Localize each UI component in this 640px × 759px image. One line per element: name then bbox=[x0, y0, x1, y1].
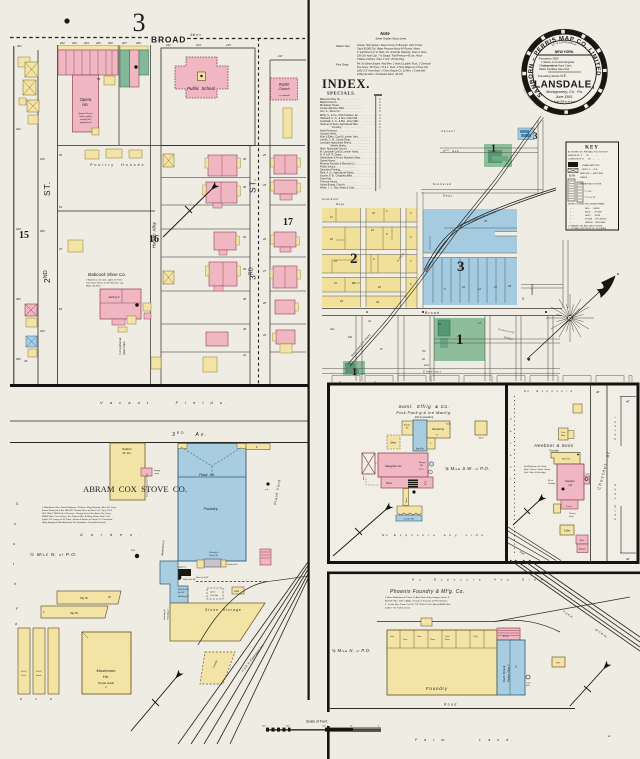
svg-text:3: 3 bbox=[457, 259, 465, 275]
svg-text:202: 202 bbox=[59, 41, 65, 45]
svg-text:Dwellings: Dwellings bbox=[530, 283, 534, 295]
svg-text:61: 61 bbox=[59, 205, 63, 209]
svg-text:GREEN . . SPECIALS: GREEN . . SPECIALS bbox=[585, 221, 606, 224]
svg-text:28: 28 bbox=[262, 301, 267, 305]
svg-text:15: 15 bbox=[19, 230, 29, 241]
svg-text:65: 65 bbox=[59, 307, 63, 311]
svg-text:Baptist: Baptist bbox=[279, 83, 290, 87]
svg-text:1: 1 bbox=[491, 144, 496, 155]
svg-text:Vac.: Vac. bbox=[330, 327, 335, 331]
svg-text:Race: Race bbox=[406, 497, 408, 503]
svg-text:Vacant: Vacant bbox=[441, 129, 456, 133]
svg-text:Cast'g: Cast'g bbox=[566, 505, 572, 508]
svg-text:“ 1TY & 2 1/2”: “ 1TY & 2 1/2” bbox=[584, 197, 596, 199]
svg-text:27: 27 bbox=[262, 269, 267, 273]
svg-text:2 Independent Hose Carts: 2 Independent Hose Carts bbox=[539, 64, 572, 68]
svg-text:No E x p o s u r e a n y: No E x p o s u r e a n y s i d e . bbox=[382, 533, 490, 537]
svg-text:St: St bbox=[521, 297, 525, 300]
svg-text:INDEX.: INDEX. bbox=[322, 77, 370, 91]
svg-text:303: 303 bbox=[16, 297, 21, 301]
svg-text:½ MILE N. of P.O.: ½ MILE N. of P.O. bbox=[30, 551, 78, 557]
svg-text:Cox, A., Stove Co.............: Cox, A., Stove Co.......................… bbox=[320, 110, 362, 113]
svg-text:Hay Ho.: Hay Ho. bbox=[80, 597, 89, 600]
svg-text:53': 53' bbox=[97, 77, 101, 81]
svg-text:Heat'r: Stoves. Power: Steam.: Heat'r: Stoves. Power: Steam. bbox=[524, 468, 551, 471]
svg-text:40': 40' bbox=[626, 557, 630, 561]
svg-text:• . .: • . . bbox=[570, 215, 575, 217]
svg-text:36: 36 bbox=[243, 327, 247, 331]
svg-text:Private Grade: Private Grade bbox=[98, 681, 115, 685]
svg-text:26: 26 bbox=[242, 157, 247, 161]
svg-text:Fuel: Coke. No Fire App.: Fuel: Coke. No Fire App. bbox=[524, 471, 546, 474]
svg-text:Water Fac:: Water Fac: bbox=[336, 44, 351, 48]
svg-text:W. Ho.: W. Ho. bbox=[122, 451, 131, 455]
svg-text:¾ MILE S.W. of P.O.: ¾ MILE S.W. of P.O. bbox=[445, 466, 490, 471]
svg-text:1 B: 1 B bbox=[568, 484, 572, 487]
svg-text:2nd: 2nd bbox=[423, 363, 429, 367]
svg-text:LANSDALE,: LANSDALE, bbox=[534, 80, 595, 91]
svg-text:Ware: Ware bbox=[580, 540, 584, 542]
svg-text:26: 26 bbox=[377, 285, 381, 289]
svg-text:1 Steam & At Hand Engines: 1 Steam & At Hand Engines bbox=[541, 60, 575, 64]
svg-text:SPECIALS.: SPECIALS. bbox=[327, 91, 356, 96]
svg-text:Ice Ho.: Ice Ho. bbox=[416, 447, 424, 451]
svg-text:& Big Fire Alarm. No Electric: & Big Fire Alarm. No Electric Alarm. All… bbox=[357, 73, 404, 76]
svg-text:Lights: Oil. Lamps to 20' Foun: Lights: Oil. Lamps to 20' Foun'. Steam &… bbox=[42, 518, 113, 521]
svg-text:204: 204 bbox=[39, 329, 45, 333]
svg-text:2 Hours Watchman & Clock. To A: 2 Hours Watchman & Clock. To And: Stove … bbox=[384, 596, 450, 599]
svg-text:Lane: Lane bbox=[390, 636, 394, 638]
svg-text:Shop: Shop bbox=[569, 516, 573, 518]
svg-text:206: 206 bbox=[107, 41, 113, 45]
svg-text:AT STORES STO FRE WALL TIN &: AT STORES STO FRE WALL TIN & GR ROOF bbox=[568, 151, 609, 154]
svg-text:Mushroom: Mushroom bbox=[97, 668, 117, 673]
svg-text:RED . . . BRICK: RED . . . BRICK bbox=[585, 208, 600, 210]
svg-text:32: 32 bbox=[243, 235, 247, 239]
svg-text:room: room bbox=[154, 473, 159, 475]
svg-text:Heebner & Sons: Heebner & Sons bbox=[534, 443, 574, 448]
svg-text:n' to steeple: n' to steeple bbox=[278, 94, 290, 97]
svg-text:Foundry: Foundry bbox=[426, 686, 448, 691]
svg-text:N o E x p o s u r e A n: N o E x p o s u r e A n y S i d e bbox=[412, 578, 544, 582]
svg-text:C: C bbox=[35, 698, 37, 701]
svg-text:Shed: Shed bbox=[390, 442, 396, 445]
svg-text:Pattern Shop 2: Pattern Shop 2 bbox=[507, 664, 511, 682]
svg-text:GREY . . . IRON: GREY . . . IRON bbox=[585, 215, 601, 217]
svg-text:Hay Ho.: Hay Ho. bbox=[70, 612, 79, 615]
svg-text:“ 1” & 2F “: “ 1” & 2F “ bbox=[584, 191, 593, 193]
svg-text:Tanks: Tanks bbox=[446, 424, 451, 426]
svg-text:June 1891.: June 1891. bbox=[555, 95, 574, 99]
svg-text:Factory 2: Factory 2 bbox=[109, 295, 120, 299]
svg-text:Ho: Ho bbox=[424, 484, 426, 486]
svg-text:SUPER COLORED YELLOW ARE FRAME: SUPER COLORED YELLOW ARE FRAME bbox=[568, 203, 605, 206]
svg-text:1: 1 bbox=[456, 332, 464, 348]
svg-text:27: 27 bbox=[493, 285, 497, 289]
svg-text:1 Watchman. No clock. Lights O: 1 Watchman. No clock. Lights Oil. Fuel: bbox=[86, 279, 123, 282]
svg-text:• . .: • . . bbox=[570, 212, 575, 214]
svg-text:b.m.: b.m. bbox=[131, 549, 136, 552]
svg-text:Bl.sm: Bl.sm bbox=[548, 480, 553, 482]
svg-text:3: 3 bbox=[133, 8, 146, 37]
svg-text:29: 29 bbox=[262, 333, 267, 337]
svg-text:Scattered: Scattered bbox=[322, 197, 339, 201]
svg-text:100: 100 bbox=[40, 157, 45, 161]
svg-text:Dwgs: Dwgs bbox=[443, 194, 453, 198]
svg-text:White, J. J., Hay, Straw & Coa: White, J. J., Hay, Straw & Coal,........… bbox=[320, 187, 376, 190]
svg-text:ST.: ST. bbox=[42, 181, 52, 196]
svg-text:WHISKEY/BUTT STORE: WHISKEY/BUTT STORE bbox=[580, 184, 602, 186]
svg-text:16: 16 bbox=[149, 234, 159, 245]
svg-text:Coal: Coal bbox=[234, 590, 239, 593]
svg-text:V a c a n t: V a c a n t bbox=[613, 416, 617, 440]
svg-text:Storage: Storage bbox=[419, 461, 426, 464]
svg-text:50: 50 bbox=[59, 153, 63, 157]
svg-text:• FRAME PARTITION . . .: • FRAME PARTITION . . . bbox=[580, 164, 603, 167]
svg-text:25: 25 bbox=[262, 183, 267, 187]
svg-text:Fire Dept:: Fire Dept: bbox=[336, 63, 349, 67]
svg-text:Ho 28': Ho 28' bbox=[178, 592, 185, 594]
svg-text:Feed: Feed bbox=[36, 675, 42, 677]
svg-text:Population 3000: Population 3000 bbox=[539, 57, 559, 61]
svg-text:21: 21 bbox=[333, 259, 337, 263]
svg-text:8 Mdse at Works. Town 4" & 6".: 8 Mdse at Works. Town 4" & 6". 20 Fire P… bbox=[357, 58, 405, 61]
svg-text:Note: Note bbox=[380, 31, 390, 36]
svg-text:207: 207 bbox=[121, 41, 127, 45]
svg-text:Pork Pack'g & Ice Manf'g.: Pork Pack'g & Ice Manf'g. bbox=[396, 410, 452, 415]
svg-text:COMPOS'N RF B OB —: COMPOS'N RF B OB — — bbox=[568, 159, 600, 161]
svg-text:ST.: ST. bbox=[248, 178, 258, 193]
svg-text:STABLE . . . .: STABLE . . . . bbox=[580, 176, 592, 179]
svg-text:Flask Ho.: Flask Ho. bbox=[199, 473, 215, 477]
svg-text:24: 24 bbox=[339, 299, 343, 303]
svg-text:Coal: Coal bbox=[21, 675, 26, 677]
svg-text:Steam Pipe: Steam Pipe bbox=[122, 341, 126, 355]
svg-text:641: 641 bbox=[348, 335, 353, 339]
svg-text:40': 40' bbox=[626, 400, 630, 404]
svg-text:u: u bbox=[13, 542, 15, 546]
svg-text:Pens: Pens bbox=[386, 481, 393, 485]
svg-text:Open: Open bbox=[210, 592, 216, 594]
svg-text:Clean'g: Clean'g bbox=[569, 513, 576, 515]
svg-text:BLUE . . . STONE: BLUE . . . STONE bbox=[585, 212, 602, 214]
svg-text:Pattern Ho.: Pattern Ho. bbox=[227, 563, 238, 566]
svg-text:Storage: Storage bbox=[579, 548, 586, 551]
svg-text:KEY: KEY bbox=[585, 146, 599, 151]
svg-text:H & F: H & F bbox=[36, 671, 42, 673]
svg-text:STONE . . THO.WOOD: STONE . . THO.WOOD bbox=[585, 219, 607, 221]
svg-text:25: 25 bbox=[262, 153, 267, 157]
svg-text:□ SHADED 1ST AND 2ND FLOORS: □ SHADED 1ST AND 2ND FLOORS bbox=[568, 225, 603, 228]
svg-text:Phoenix Foundry & Mf'g. Co.: Phoenix Foundry & Mf'g. Co. bbox=[390, 589, 465, 595]
svg-text:Molding 29: Molding 29 bbox=[178, 596, 189, 598]
svg-text:Steam Pump Ho & Sta. Mill 3'/2: Steam Pump Ho & Sta. Mill 3'/2" Outside … bbox=[42, 509, 113, 512]
svg-text:20: 20 bbox=[329, 237, 333, 241]
svg-text:Foundry.: Foundry. bbox=[204, 507, 219, 511]
svg-text:Broad: Broad bbox=[425, 311, 440, 315]
svg-text:NEW YORK.: NEW YORK. bbox=[555, 50, 575, 54]
svg-text:Water Facilities See Note: Water Facilities See Note bbox=[539, 67, 570, 71]
svg-text:ABRAM COX STOVE CO.: ABRAM COX STOVE CO. bbox=[83, 484, 187, 494]
svg-text:• . .: • . . bbox=[570, 219, 575, 221]
svg-text:305: 305 bbox=[16, 357, 21, 361]
svg-text:Core: Core bbox=[403, 639, 407, 641]
svg-text:Church: Church bbox=[279, 87, 290, 91]
svg-text:Ho.: Ho. bbox=[82, 102, 89, 107]
svg-text:30000 Gals. Cist to Flues: Ho.: 30000 Gals. Cist to Flues: Ho. Pattern W… bbox=[42, 515, 110, 518]
svg-text:• BRICK & • W.H.: • BRICK & • W.H. bbox=[580, 169, 598, 171]
svg-text:H & F: H & F bbox=[21, 671, 27, 673]
svg-text:Coal. Heat: Steam. 12 Fire Buc: Coal. Heat: Steam. 12 Fire Buckets. City bbox=[86, 282, 124, 285]
svg-text:o: o bbox=[14, 522, 16, 526]
svg-text:• . .: • . . bbox=[570, 208, 575, 210]
svg-text:Slaughter Ho.: Slaughter Ho. bbox=[385, 464, 402, 468]
svg-text:Oven: Oven bbox=[417, 636, 422, 638]
svg-text:31: 31 bbox=[243, 353, 247, 357]
svg-text:• . .: • . . bbox=[570, 222, 575, 224]
svg-text:Polishing 2: Polishing 2 bbox=[168, 609, 170, 620]
svg-text:Road: Road bbox=[444, 703, 458, 707]
svg-text:27 G.: 27 G. bbox=[418, 469, 424, 471]
svg-text:V a c a n t F i e l d s.: V a c a n t F i e l d s. bbox=[100, 400, 229, 405]
svg-text:And Htr' Wks. 100' x' Bldgs. 4: And Htr' Wks. 100' x' Bldgs. 4 Tanks In … bbox=[384, 600, 448, 603]
svg-text:23: 23 bbox=[351, 281, 355, 285]
svg-text:Boiler Ho 30': Boiler Ho 30' bbox=[183, 579, 196, 581]
svg-text:Seats, gallery: Seats, gallery bbox=[79, 115, 93, 118]
svg-text:China: China bbox=[430, 639, 435, 641]
svg-text:33': 33' bbox=[24, 359, 28, 363]
svg-text:a: a bbox=[15, 622, 17, 626]
svg-text:Cup'la R.: Cup'la R. bbox=[209, 555, 218, 557]
svg-text:Mach. Shop &: Mach. Shop & bbox=[502, 665, 506, 682]
svg-text:Babcock Shoe Co.: Babcock Shoe Co. bbox=[88, 272, 126, 277]
svg-text:G a r d e n .: G a r d e n . bbox=[80, 533, 144, 537]
svg-text:¼ MILE N. of P.O.: ¼ MILE N. of P.O. bbox=[332, 648, 371, 653]
svg-text:1: 1 bbox=[352, 367, 357, 378]
svg-text:Rendering: Rendering bbox=[432, 427, 445, 431]
svg-text:Ho.: Ho. bbox=[103, 674, 109, 679]
svg-text:3: 3 bbox=[533, 131, 538, 141]
svg-text:Chestnut: Chestnut bbox=[423, 370, 441, 374]
svg-text:39: 39 bbox=[243, 267, 247, 271]
svg-text:Montgomery, Co. Pa.: Montgomery, Co. Pa. bbox=[546, 90, 583, 94]
svg-text:Scale 50ft to an inch: Scale 50ft to an inch bbox=[554, 101, 576, 104]
svg-text:Smoke: Smoke bbox=[404, 425, 411, 427]
svg-text:seating 500: seating 500 bbox=[80, 118, 92, 121]
svg-text:212: 212 bbox=[165, 43, 171, 47]
svg-text:lighted by oil: lighted by oil bbox=[80, 121, 92, 124]
svg-text:No E x p o s u r e: No E x p o s u r e bbox=[524, 389, 573, 393]
svg-text:p.h.: p.h. bbox=[264, 489, 269, 491]
svg-text:28: 28 bbox=[507, 284, 511, 288]
svg-text:26: 26 bbox=[262, 237, 267, 241]
svg-text:Carp: Carp bbox=[561, 432, 565, 434]
svg-text:Coal Bin: Coal Bin bbox=[210, 595, 219, 597]
svg-text:102: 102 bbox=[16, 127, 21, 131]
svg-text:203: 203 bbox=[71, 41, 77, 45]
svg-text:Poultry Houses: Poultry Houses bbox=[90, 163, 145, 167]
svg-text:7th: 7th bbox=[422, 349, 426, 353]
svg-text:open: open bbox=[363, 476, 365, 480]
svg-text:D: D bbox=[50, 698, 52, 701]
svg-text:No Watchman. No Clock.: No Watchman. No Clock. bbox=[524, 465, 547, 468]
svg-text:F a r m L a n d.: F a r m L a n d. bbox=[415, 738, 515, 742]
svg-text:Cider: Cider bbox=[564, 529, 570, 533]
svg-text:Scale of Feet.: Scale of Feet. bbox=[306, 720, 328, 724]
svg-text:Prevailing Winds N.E.: Prevailing Winds N.E. bbox=[538, 74, 567, 78]
svg-text:Foundry: Foundry bbox=[549, 449, 559, 453]
svg-text:Grinding &: Grinding & bbox=[164, 609, 166, 620]
svg-text:In All. 1" W. P. 40 Cisterns: In All. 1" W. P. 40 Cisterns bbox=[385, 607, 411, 610]
svg-text:17: 17 bbox=[283, 217, 293, 228]
svg-text:drying: drying bbox=[154, 470, 161, 472]
svg-text:Stage & Scen'y: Stage & Scen'y bbox=[78, 112, 93, 115]
svg-text:“ “ Foundry,: “ “ Foundry,............................… bbox=[329, 126, 363, 129]
svg-text:205: 205 bbox=[95, 41, 101, 45]
svg-text:Foundry: Foundry bbox=[548, 483, 556, 485]
svg-text:2: 2 bbox=[350, 251, 358, 267]
svg-text:RR: RR bbox=[556, 663, 560, 665]
svg-text:Scattered: Scattered bbox=[433, 182, 451, 186]
svg-text:Water. No Hose: Water. No Hose bbox=[86, 285, 101, 288]
svg-text:214: 214 bbox=[195, 43, 201, 47]
svg-text:201: 201 bbox=[16, 44, 22, 48]
svg-text:1 Watchman. Elec Clock 4 Stati: 1 Watchman. Elec Clock 4 Stations. 12 Ho… bbox=[42, 506, 117, 509]
svg-text:40': 40' bbox=[596, 390, 600, 394]
svg-text:Factory: Factory bbox=[565, 479, 575, 483]
svg-text:Public School: Public School bbox=[187, 86, 216, 91]
svg-text:h: h bbox=[14, 582, 16, 586]
svg-text:Saml. Effrig & Co.: Saml. Effrig & Co. bbox=[398, 404, 449, 409]
svg-text:F a r m L a n d: F a r m L a n d bbox=[613, 483, 617, 520]
svg-text:Norris'y R W: Norris'y R W bbox=[196, 577, 209, 579]
svg-text:2 - Casks Day. Power On P.H. 7: 2 - Casks Day. Power On P.H. 7'/2" Wall … bbox=[384, 603, 451, 606]
svg-text:208: 208 bbox=[135, 41, 141, 45]
svg-text:Engine &: Engine & bbox=[177, 567, 186, 569]
svg-text:Dwgs: Dwgs bbox=[336, 202, 345, 206]
svg-text:Ware Ho: Ware Ho bbox=[562, 459, 571, 461]
svg-text:n' to Hydrant &: n' to Hydrant & bbox=[118, 338, 122, 355]
svg-text:SHINGLE RF. X OF —: SHINGLE RF. X OF — — bbox=[568, 155, 598, 157]
svg-text:38: 38 bbox=[243, 297, 247, 301]
svg-text:4 th o' c: 4 th o' c bbox=[190, 33, 201, 37]
svg-text:Clean'g &: Clean'g & bbox=[209, 552, 219, 554]
svg-text:47: 47 bbox=[59, 247, 63, 251]
svg-text:Shop Equipped With Automatic F: Shop Equipped With Automatic Fire Sprink… bbox=[42, 521, 107, 524]
svg-text:W.P. With 3 75G Ho'd of Pressu: W.P. With 3 75G Ho'd of Pressure. Pump'g… bbox=[42, 512, 112, 515]
svg-text:200: 200 bbox=[39, 229, 45, 233]
svg-text:(Not in operation): (Not in operation) bbox=[415, 416, 434, 419]
svg-text:30: 30 bbox=[243, 185, 247, 189]
svg-text:22: 22 bbox=[333, 281, 337, 285]
svg-text:217: 217 bbox=[277, 54, 283, 58]
svg-text:WINDOWS + SHUTTERS: WINDOWS + SHUTTERS bbox=[580, 173, 604, 175]
svg-text:Street Grades About Level.: Street Grades About Level. bbox=[375, 37, 407, 41]
svg-text:5√ 7B: 5√ 7B bbox=[569, 175, 576, 178]
svg-text:204: 204 bbox=[83, 41, 89, 45]
svg-text:100: 100 bbox=[16, 227, 21, 231]
svg-text:Shop: Shop bbox=[561, 435, 565, 437]
svg-text:Buff & Ruff: Buff & Ruff bbox=[178, 589, 189, 591]
svg-text:2 Lime Ho.: 2 Lime Ho. bbox=[403, 519, 415, 521]
svg-text:215: 215 bbox=[225, 43, 231, 47]
svg-text:□ 1ST BALCONY ROOF OF VOLUME: □ 1ST BALCONY ROOF OF VOLUMES bbox=[568, 227, 607, 230]
